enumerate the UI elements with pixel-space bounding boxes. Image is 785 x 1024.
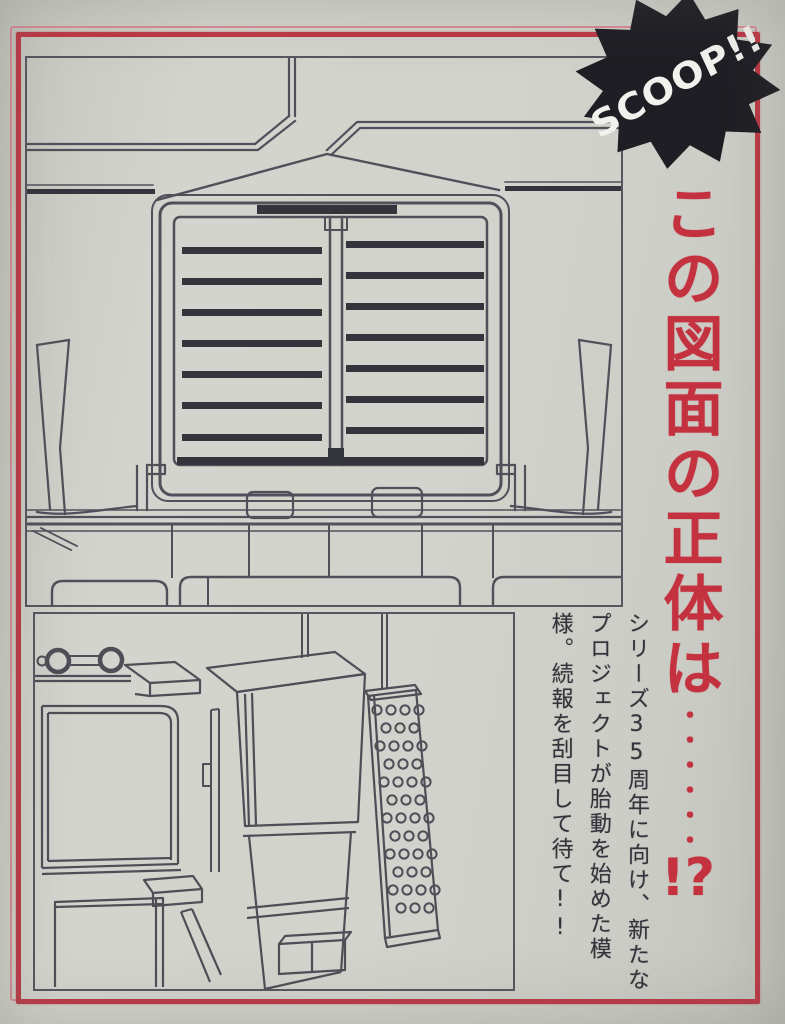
figure-perspective-view [33, 612, 515, 991]
headline: この図面の正体は・・・・・・!? [640, 182, 732, 1000]
caption-column-group: シリーズ35周年に向け、新たな プロジェクトが胎動を始めた模 様。続報を刮目して… [502, 612, 648, 1002]
perspective-view-drawing [35, 614, 513, 989]
scoop-badge: SCOOP!! [563, 0, 785, 184]
magazine-page: シリーズ35周年に向け、新たな プロジェクトが胎動を始めた模 様。続報を刮目して… [0, 0, 785, 1024]
headline-dots: ・・・・・・ [674, 702, 703, 852]
headline-end: !? [658, 852, 718, 904]
front-view-drawing [27, 58, 621, 605]
caption-line-3: 様。続報を刮目して待て!! [547, 612, 571, 1002]
caption-line-2: プロジェクトが胎動を始めた模 [586, 612, 610, 1002]
headline-main: この図面の正体は [653, 182, 723, 702]
figure-front-view [25, 56, 623, 607]
